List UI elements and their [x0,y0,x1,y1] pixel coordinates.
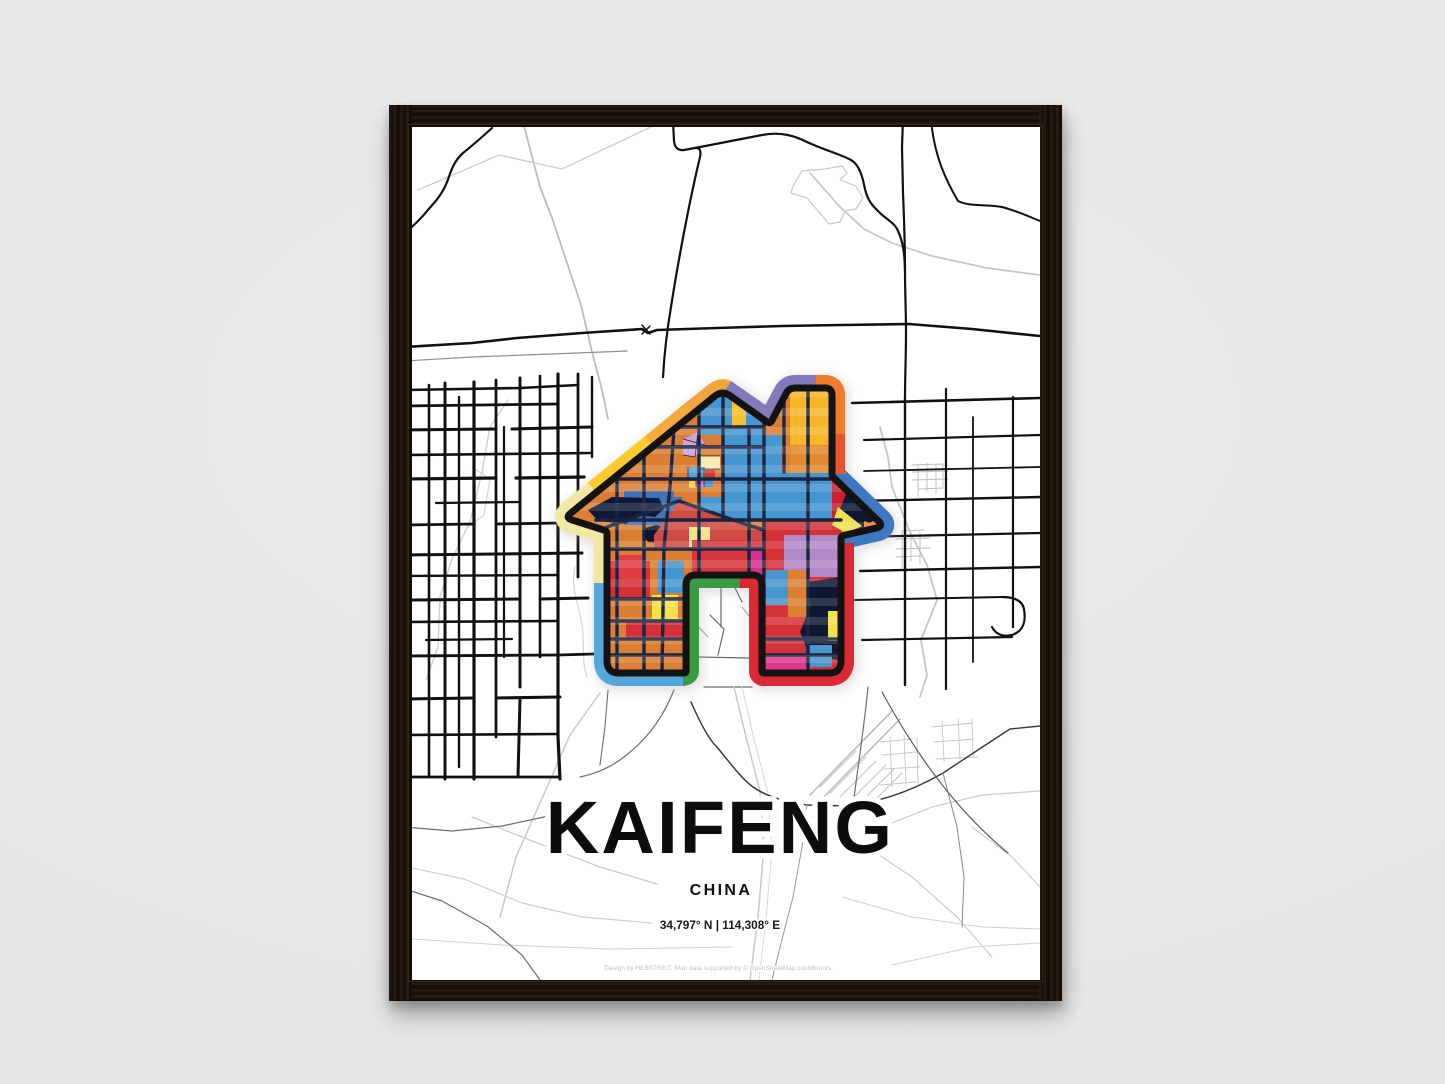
svg-text:KAIFENG: KAIFENG [546,786,894,869]
svg-text:CHINA: CHINA [690,882,753,899]
svg-text:34,797° N | 114,308° E: 34,797° N | 114,308° E [660,918,780,932]
svg-text:Design by HEBSTREIT, Map data: Design by HEBSTREIT, Map data supported … [605,964,834,972]
